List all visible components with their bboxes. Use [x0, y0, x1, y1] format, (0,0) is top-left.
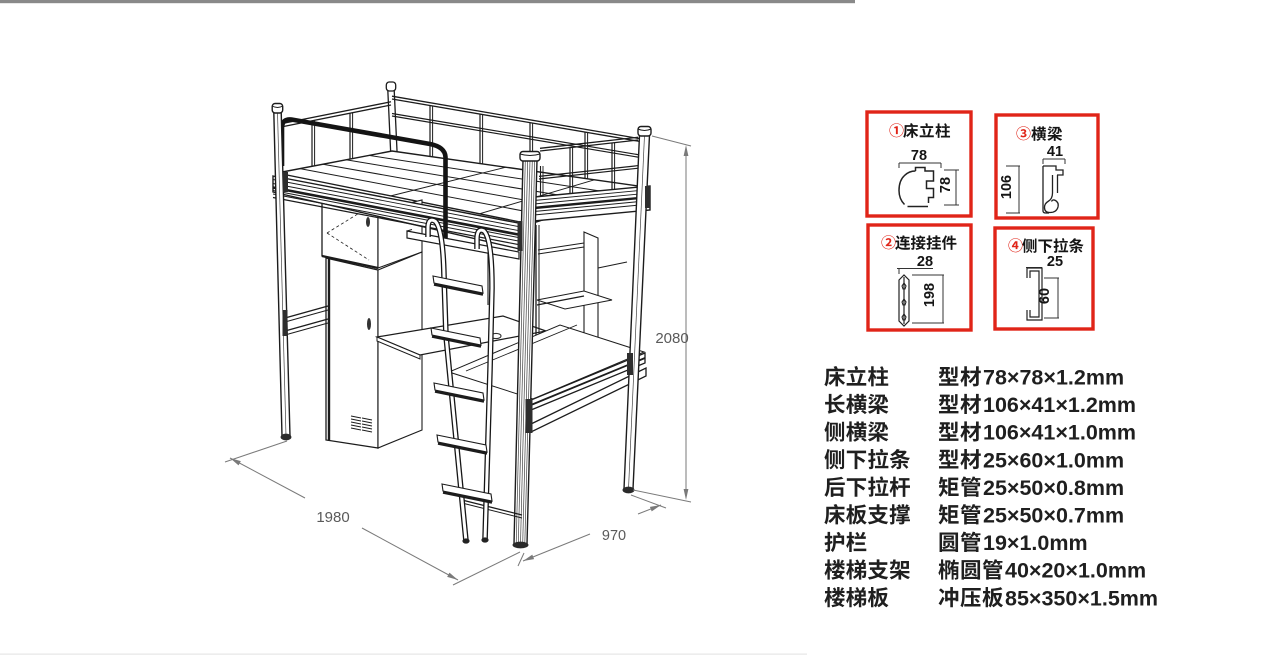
svg-text:78: 78 — [911, 148, 927, 164]
svg-text:25×60×1.0mm: 25×60×1.0mm — [983, 448, 1124, 472]
svg-text:106: 106 — [999, 175, 1015, 199]
svg-text:198: 198 — [922, 283, 938, 307]
svg-text:1980: 1980 — [316, 509, 349, 526]
svg-text:78: 78 — [938, 177, 954, 193]
svg-text:25×50×0.8mm: 25×50×0.8mm — [983, 476, 1124, 500]
svg-text:19×1.0mm: 19×1.0mm — [983, 531, 1088, 555]
svg-text:25×50×0.7mm: 25×50×0.7mm — [983, 504, 1124, 528]
svg-text:970: 970 — [602, 528, 626, 544]
svg-text:85×350×1.5mm: 85×350×1.5mm — [1005, 586, 1158, 610]
svg-text:106×41×1.0mm: 106×41×1.0mm — [983, 421, 1136, 445]
svg-text:60: 60 — [1037, 288, 1053, 304]
svg-text:41: 41 — [1047, 144, 1063, 160]
svg-text:106×41×1.2mm: 106×41×1.2mm — [983, 393, 1136, 417]
svg-text:28: 28 — [917, 254, 933, 270]
svg-text:2080: 2080 — [655, 330, 688, 347]
svg-text:40×20×1.0mm: 40×20×1.0mm — [1005, 559, 1146, 583]
svg-text:25: 25 — [1047, 254, 1063, 270]
svg-text:78×78×1.2mm: 78×78×1.2mm — [983, 366, 1124, 390]
